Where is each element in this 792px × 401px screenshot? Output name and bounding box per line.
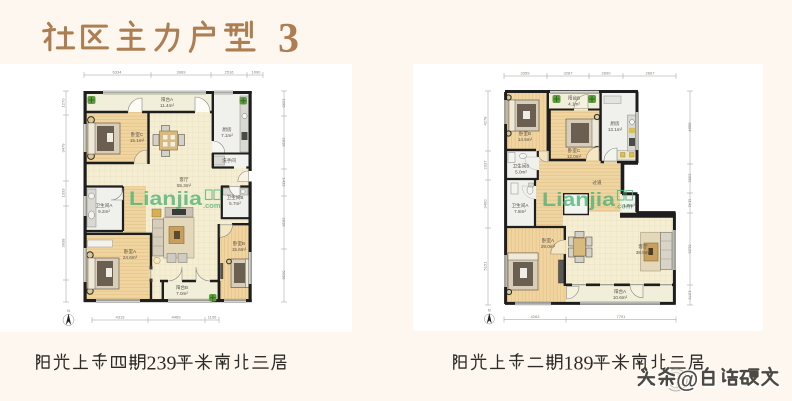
svg-text:2818: 2818 [282, 218, 287, 228]
svg-text:客厅: 客厅 [638, 243, 648, 250]
svg-text:@: @ [676, 367, 698, 393]
svg-text:阳台A: 阳台A [161, 96, 174, 103]
svg-text:2337: 2337 [483, 160, 488, 170]
svg-text:7791: 7791 [617, 314, 627, 319]
svg-text:5151: 5151 [483, 261, 488, 271]
svg-text:卧室C: 卧室C [131, 131, 144, 138]
svg-text:阳台B: 阳台B [568, 95, 580, 102]
svg-text:厨房: 厨房 [222, 126, 232, 133]
svg-text:38.5m²: 38.5m² [636, 250, 651, 255]
svg-text:卧室A: 卧室A [542, 237, 555, 244]
svg-text:1106: 1106 [208, 315, 217, 320]
svg-text:3969: 3969 [177, 70, 187, 75]
svg-text:过道: 过道 [592, 179, 602, 186]
svg-text:.com: .com [203, 201, 221, 210]
svg-text:1333: 1333 [61, 188, 66, 198]
svg-text:卧室C: 卧室C [568, 147, 581, 154]
svg-text:1373: 1373 [688, 291, 693, 301]
svg-text:7.0m²: 7.0m² [176, 291, 188, 296]
svg-text:阳台A: 阳台A [614, 288, 627, 295]
svg-text:4.1m²: 4.1m² [568, 102, 580, 107]
svg-text:卧室B: 卧室B [519, 130, 531, 137]
svg-text:10.6m²: 10.6m² [613, 295, 628, 300]
svg-text:5.0m²: 5.0m² [515, 170, 527, 175]
svg-text:12.0m²: 12.0m² [567, 154, 582, 159]
svg-text:Lianjia: Lianjia [129, 188, 202, 210]
svg-text:卫生间A: 卫生间A [96, 202, 114, 209]
svg-text:卫生间B: 卫生间B [513, 163, 530, 170]
svg-text:2690: 2690 [602, 71, 612, 76]
svg-text:客厅: 客厅 [179, 176, 189, 183]
svg-text:5038: 5038 [282, 271, 287, 281]
svg-text:3400: 3400 [483, 199, 488, 209]
svg-text:卫生间B: 卫生间B [227, 194, 244, 201]
svg-text:3359: 3359 [521, 71, 531, 76]
svg-text:1270: 1270 [61, 98, 66, 108]
svg-text:1141: 1141 [688, 199, 693, 208]
svg-text:9.2m²: 9.2m² [98, 209, 110, 214]
svg-text:3: 3 [278, 16, 299, 60]
svg-text:14.5m²: 14.5m² [518, 137, 533, 142]
svg-text:6334: 6334 [113, 70, 123, 75]
svg-text:15.6m²: 15.6m² [232, 247, 247, 252]
svg-text:29.0m²: 29.0m² [541, 244, 556, 249]
svg-text:3479: 3479 [61, 143, 66, 153]
svg-text:2362: 2362 [688, 174, 693, 184]
svg-text:8884: 8884 [688, 123, 693, 133]
svg-text:阳台B: 阳台B [176, 284, 188, 291]
svg-text:55.3m²: 55.3m² [177, 183, 192, 188]
svg-text:1.8m²: 1.8m² [623, 203, 635, 208]
svg-text:11.4m²: 11.4m² [160, 103, 174, 108]
svg-text:15.1m²: 15.1m² [130, 138, 145, 143]
svg-text:2667: 2667 [646, 71, 656, 76]
svg-text:4278: 4278 [483, 116, 488, 126]
svg-text:4319: 4319 [116, 315, 126, 320]
svg-text:3938: 3938 [61, 238, 66, 248]
svg-text:洗手间: 洗手间 [222, 157, 236, 164]
svg-text:3287: 3287 [564, 71, 574, 76]
svg-text:卫生间A: 卫生间A [512, 202, 530, 209]
svg-text:1295: 1295 [282, 99, 287, 109]
svg-text:5.7m²: 5.7m² [229, 201, 241, 206]
svg-text:厨房: 厨房 [610, 120, 620, 127]
svg-text:13.1m²: 13.1m² [608, 127, 623, 132]
svg-text:N: N [67, 309, 70, 313]
svg-text:1090: 1090 [252, 70, 262, 75]
svg-text:卧室A: 卧室A [124, 248, 137, 255]
svg-text:4469: 4469 [172, 315, 182, 320]
svg-text:2818: 2818 [282, 138, 287, 148]
svg-text:189: 189 [564, 353, 594, 375]
svg-text:4263: 4263 [531, 314, 541, 319]
svg-text:24.6m²: 24.6m² [123, 255, 138, 260]
svg-text:1433: 1433 [282, 178, 287, 188]
svg-text:7.1m²: 7.1m² [221, 133, 233, 138]
svg-text:Lianjia: Lianjia [542, 189, 615, 211]
svg-text:5129: 5129 [688, 245, 693, 255]
svg-text:卧室B: 卧室B [233, 240, 245, 247]
svg-text:7.8m²: 7.8m² [514, 209, 526, 214]
svg-text:2516: 2516 [225, 70, 235, 75]
svg-text:239: 239 [147, 353, 177, 375]
svg-text:N: N [488, 309, 491, 313]
